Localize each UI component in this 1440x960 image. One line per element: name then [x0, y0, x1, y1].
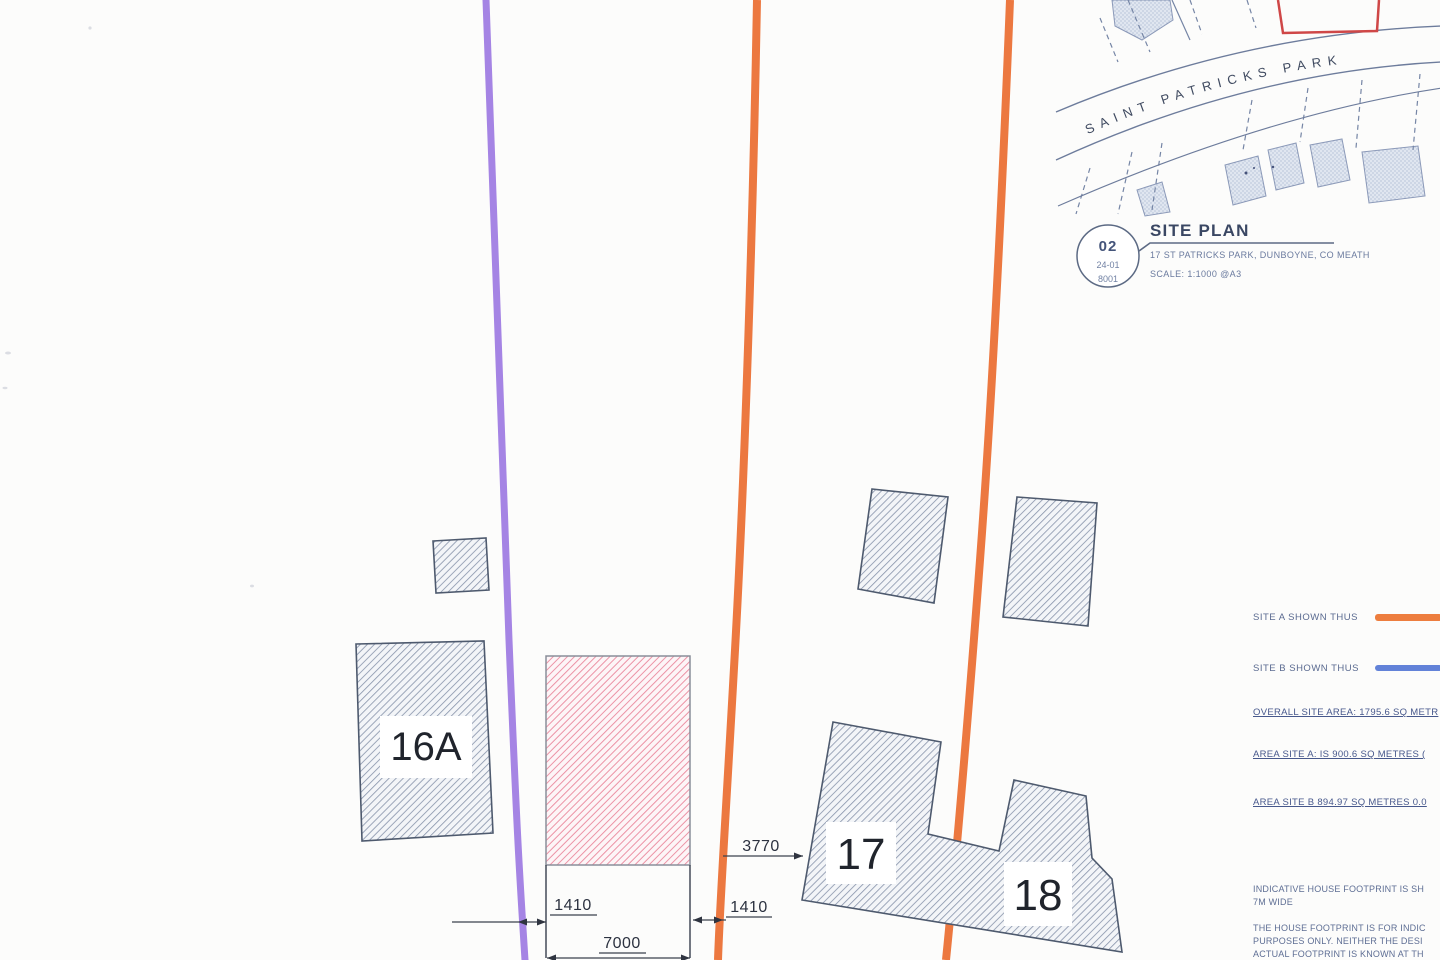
outbuilding-right — [1003, 497, 1097, 626]
site-plan-drawing: SAINT PATRICKS PARK 16A — [0, 0, 1440, 960]
note-disclaimer-line1: THE HOUSE FOOTPRINT IS FOR INDIC — [1253, 922, 1426, 935]
dim-right-offset: 1410 — [730, 899, 768, 916]
outbuilding-left — [858, 489, 948, 603]
sheet-code: 8001 — [1086, 274, 1130, 284]
svg-text:17: 17 — [837, 830, 886, 879]
project-code: 24-01 — [1086, 260, 1130, 270]
svg-text:18: 18 — [1014, 871, 1063, 920]
note-footprint-line1: INDICATIVE HOUSE FOOTPRINT IS SH — [1253, 883, 1424, 896]
svg-text:16A: 16A — [390, 725, 461, 769]
site-a-boundary-line-right — [946, 0, 1010, 960]
plot-label-17: 17 — [826, 822, 896, 884]
street-name-label: SAINT PATRICKS PARK — [1083, 52, 1344, 137]
dim-site-gap: 3770 — [742, 838, 780, 855]
inset-building — [1225, 156, 1266, 205]
inset-building — [1310, 139, 1350, 187]
inset-plot-line — [1172, 0, 1190, 40]
dim-footprint-width: 7000 — [603, 935, 641, 952]
plot-label-18: 18 — [1004, 862, 1072, 926]
legend-site-a-label: SITE A SHOWN THUS — [1253, 612, 1358, 623]
subject-site-red-outline — [1278, 0, 1379, 33]
area-site-a: AREA SITE A: IS 900.6 SQ METRES ( — [1253, 749, 1426, 760]
site-a-boundary-line-left — [718, 0, 757, 960]
shed-small — [433, 538, 489, 593]
note-disclaimer: THE HOUSE FOOTPRINT IS FOR INDIC PURPOSE… — [1253, 922, 1426, 960]
note-footprint-line2: 7M WIDE — [1253, 896, 1293, 909]
legend-site-b-label: SITE B SHOWN THUS — [1253, 663, 1359, 674]
site-plan-canvas: SAINT PATRICKS PARK 16A — [0, 0, 1440, 960]
dim-left-offset: 1410 — [554, 897, 592, 914]
overall-site-area: OVERALL SITE AREA: 1795.6 SQ METR — [1253, 707, 1438, 718]
area-site-b: AREA SITE B 894.97 SQ METRES 0.0 — [1253, 797, 1427, 808]
drawing-number: 02 — [1093, 238, 1123, 255]
inset-building — [1362, 146, 1425, 203]
site-b-legend-swatch — [1375, 665, 1440, 671]
plot-label-16a: 16A — [380, 716, 472, 778]
site-a-legend-swatch — [1375, 614, 1440, 621]
inset-location-map: SAINT PATRICKS PARK — [1056, 0, 1440, 216]
scan-specks — [3, 26, 255, 587]
drawing-scale: SCALE: 1:1000 @A3 — [1150, 269, 1242, 279]
note-disclaimer-line3: ACTUAL FOOTPRINT IS KNOWN AT TH — [1253, 948, 1426, 960]
drawing-title: SITE PLAN — [1150, 221, 1250, 241]
drawing-subtitle: 17 ST PATRICKS PARK, DUNBOYNE, CO MEATH — [1150, 250, 1370, 260]
note-disclaimer-line2: PURPOSES ONLY. NEITHER THE DESI — [1253, 935, 1426, 948]
proposed-house-footprint — [546, 656, 690, 865]
